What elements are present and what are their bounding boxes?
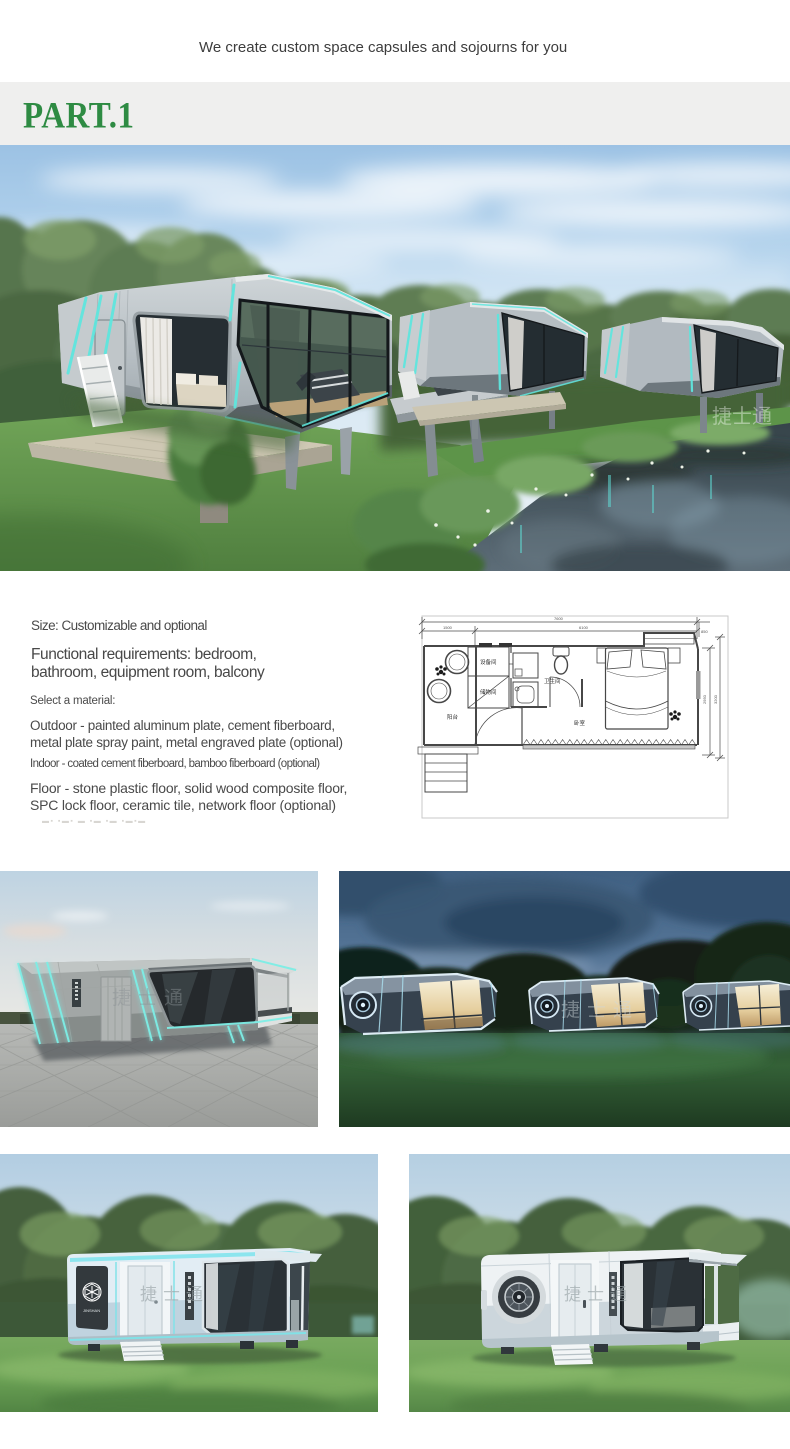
svg-text:6100: 6100 [579, 625, 589, 630]
svg-text:设备间: 设备间 [480, 658, 497, 666]
svg-text:2950: 2950 [702, 694, 707, 704]
svg-text:阳台: 阳台 [447, 713, 459, 721]
svg-text:储物间: 储物间 [480, 688, 497, 696]
svg-text:捷士通: 捷士通 [112, 987, 190, 1009]
svg-text:捷士通: 捷士通 [712, 405, 772, 428]
svg-text:卧室: 卧室 [574, 719, 586, 727]
svg-text:1500: 1500 [443, 625, 453, 630]
svg-text:850: 850 [701, 629, 708, 634]
svg-text:JINSHAN: JINSHAN [83, 1308, 100, 1313]
svg-text:捷士通: 捷士通 [561, 999, 639, 1021]
svg-text:7600: 7600 [554, 616, 564, 621]
svg-text:捷士通: 捷士通 [140, 1285, 209, 1304]
svg-text:捷士通: 捷士通 [564, 1285, 633, 1304]
svg-text:3200: 3200 [713, 694, 718, 704]
